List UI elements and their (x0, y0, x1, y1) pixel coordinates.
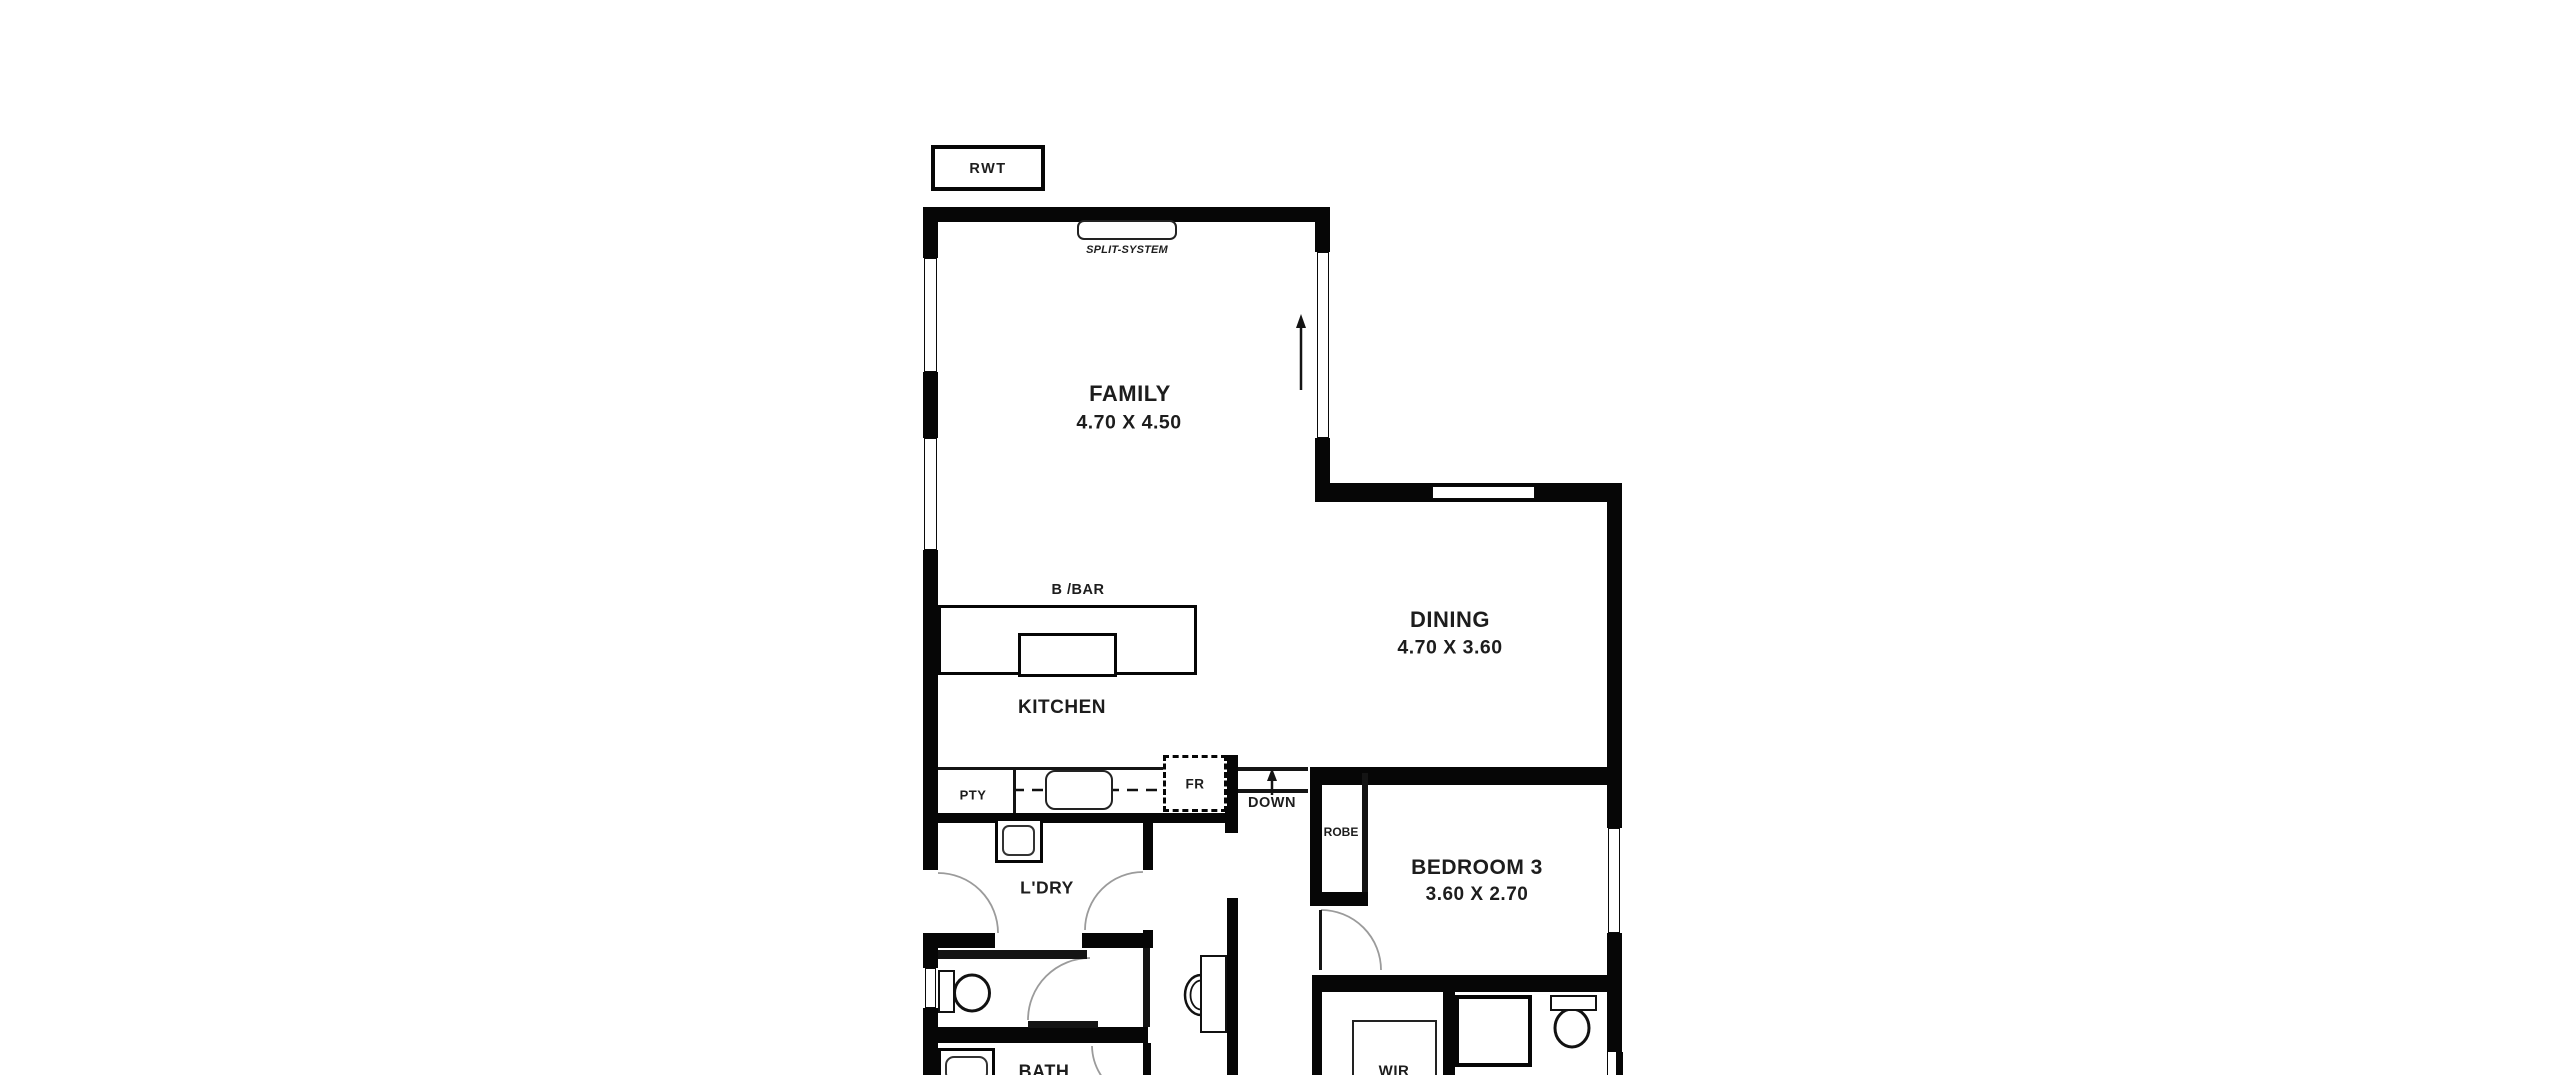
wall-bath-north (923, 1027, 1148, 1043)
wall-robe-west (1310, 785, 1322, 906)
toilet-icon (955, 975, 990, 1011)
wall-dining-right (1607, 502, 1622, 785)
fridge-space: FR (1163, 755, 1227, 812)
window-icon (924, 438, 937, 550)
wall-family-right (1315, 438, 1330, 502)
vanity-bench (1200, 955, 1227, 1033)
bedroom3-dims: 3.60 X 2.70 (1426, 884, 1529, 906)
wall-family-right (1315, 222, 1330, 252)
shower-base (1455, 995, 1532, 1067)
wall-hall-west (1227, 898, 1238, 1075)
wall-laundry-south (1082, 933, 1153, 948)
breakfast-bar-label: B /BAR (1052, 582, 1105, 598)
rwt-label: RWT (969, 161, 1006, 177)
wall-left (923, 550, 938, 870)
wall-robe-south (1310, 892, 1368, 906)
wall-kitchen-south (938, 813, 1227, 823)
sink-unit (1018, 633, 1117, 677)
bathtub-icon (938, 1048, 995, 1075)
window-icon (1608, 828, 1620, 933)
split-system-label: SPLIT-SYSTEM (1086, 244, 1168, 256)
north-flow-arrow-icon (1296, 314, 1306, 390)
robe-label: ROBE (1324, 825, 1359, 839)
split-system-unit-icon (1077, 220, 1177, 240)
window-icon (925, 968, 936, 1008)
wall-wir-west (1312, 992, 1322, 1075)
wc-door-leaf (1028, 1021, 1098, 1028)
fixture-layer (0, 0, 2560, 1075)
wall-laundry-south (923, 933, 995, 948)
stair-step-line (1238, 789, 1308, 793)
wall-dining-bottom (1310, 767, 1622, 785)
wall-bedroom-south (1312, 975, 1607, 992)
wc-shelf (938, 950, 1087, 959)
rainwater-tank-box: RWT (931, 145, 1045, 191)
bench-divider (1013, 767, 1016, 813)
family-room-dims: 4.70 X 4.50 (1076, 412, 1181, 435)
door-swing-arc-icon (1092, 1046, 1121, 1075)
dining-room-label: DINING (1410, 607, 1490, 633)
wall-wc-east (1143, 948, 1150, 1027)
stair-step-line (1238, 767, 1308, 771)
bedroom3-label: BEDROOM 3 (1411, 856, 1543, 880)
wir-label: WIR (1379, 1063, 1410, 1075)
family-room-label: FAMILY (1089, 381, 1171, 407)
wall-laundry-east (1143, 823, 1153, 870)
wall-bedroom-right (1607, 785, 1622, 828)
wall-left (923, 372, 938, 438)
ensuite-toilet-icon (1555, 1009, 1589, 1047)
trough-bowl (1002, 825, 1035, 856)
pantry-label: PTY (960, 788, 987, 803)
window-icon (1317, 252, 1329, 438)
window-icon (1432, 486, 1535, 499)
door-swing-arc-icon (1321, 910, 1381, 970)
down-label: DOWN (1248, 795, 1296, 811)
fr-label: FR (1186, 776, 1205, 791)
window-icon (924, 258, 937, 372)
bathtub-bowl (945, 1056, 988, 1075)
laundry-label: L'DRY (1020, 878, 1074, 899)
window-icon (1608, 1052, 1616, 1075)
wall-bedroom-right (1607, 933, 1622, 1052)
door-swing-arc-icon (1028, 958, 1090, 1020)
bedroom-door-leaf (1319, 910, 1322, 970)
wall-bath-east (1143, 1043, 1151, 1075)
cooktop-outline (1045, 770, 1113, 810)
toilet-cistern (938, 970, 955, 1013)
ensuite-toilet-cistern (1550, 995, 1597, 1011)
bath-label: BATH (1019, 1062, 1070, 1075)
laundry-trough-icon (995, 818, 1043, 863)
door-swing-arc-icon (938, 873, 998, 933)
kitchen-label: KITCHEN (1018, 697, 1106, 719)
wall-left (923, 207, 938, 258)
door-swing-arc-icon (1085, 872, 1143, 930)
wall-wir-east (1443, 992, 1455, 1075)
wall-robe-east (1362, 773, 1368, 892)
floorplan-canvas: RWT FR SPLIT-SYSTEM FAMILY 4.70 X 4.50 D… (0, 0, 2560, 1075)
dining-room-dims: 4.70 X 3.60 (1397, 637, 1502, 660)
